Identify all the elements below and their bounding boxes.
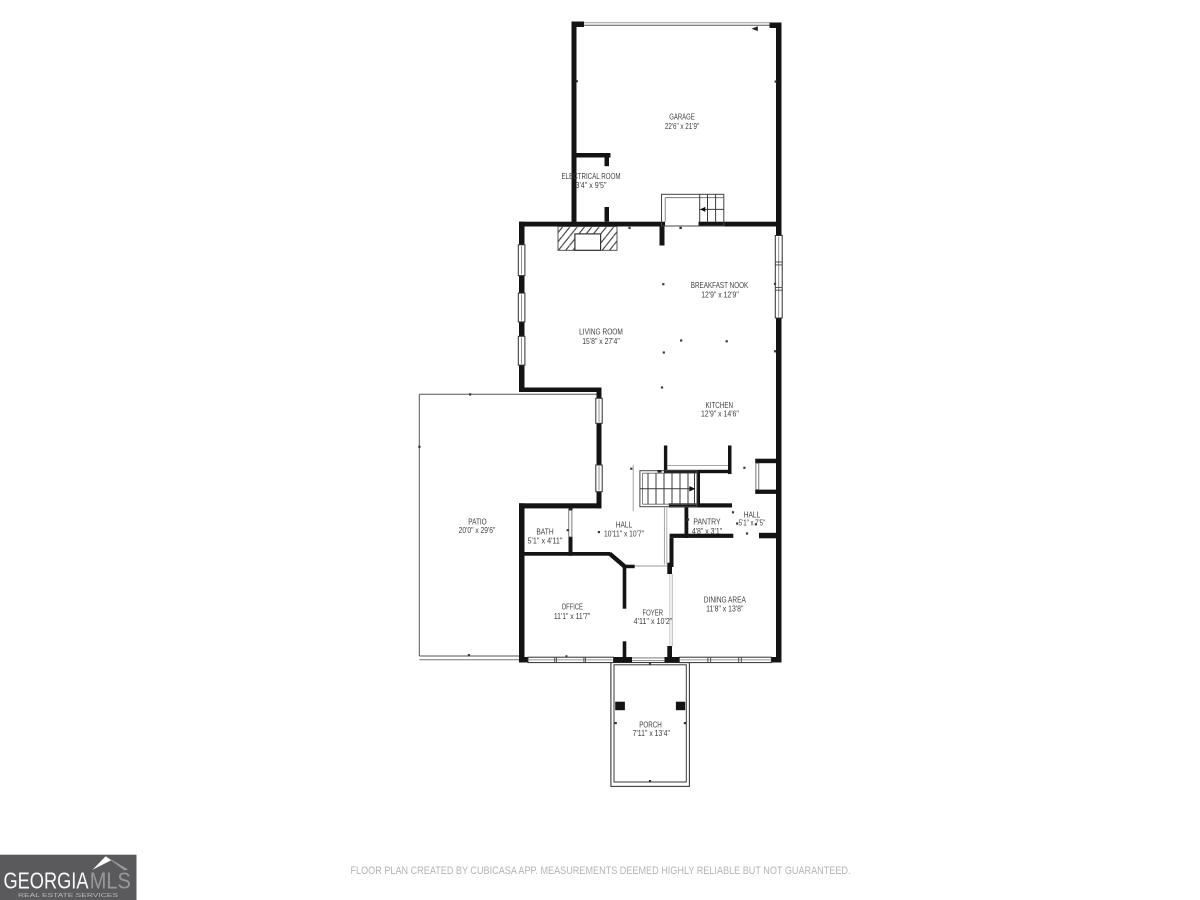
svg-text:FLOOR PLAN CREATED BY CUBICASA: FLOOR PLAN CREATED BY CUBICASA APP. MEAS…	[351, 865, 851, 877]
svg-text:11'8" x 13'8": 11'8" x 13'8"	[706, 605, 743, 614]
svg-text:3'4" x 9'5": 3'4" x 9'5"	[576, 181, 607, 190]
svg-text:20'0" x 29'6": 20'0" x 29'6"	[459, 526, 496, 535]
svg-text:5'1" x 4'11": 5'1" x 4'11"	[528, 537, 563, 546]
svg-text:12'9" x 12'9": 12'9" x 12'9"	[701, 291, 739, 300]
svg-text:LIVING ROOM: LIVING ROOM	[579, 327, 623, 337]
svg-text:HALL: HALL	[616, 520, 633, 530]
svg-text:PANTRY: PANTRY	[693, 517, 721, 527]
svg-text:FOYER: FOYER	[642, 608, 663, 618]
svg-text:REAL ESTATE SERVICES: REAL ESTATE SERVICES	[18, 893, 119, 899]
svg-text:4'11" x 10'2": 4'11" x 10'2"	[634, 617, 673, 626]
svg-text:GEORGIA: GEORGIA	[4, 868, 89, 894]
svg-text:4'8" x 3'1": 4'8" x 3'1"	[692, 527, 722, 536]
svg-text:MLS: MLS	[90, 868, 131, 894]
svg-text:10'11" x 10'7": 10'11" x 10'7"	[604, 530, 644, 539]
svg-text:PORCH: PORCH	[639, 720, 662, 730]
svg-text:12'9" x 14'6": 12'9" x 14'6"	[701, 410, 739, 419]
svg-text:PATIO: PATIO	[468, 517, 487, 527]
svg-text:BREAKFAST NOOK: BREAKFAST NOOK	[691, 280, 749, 290]
svg-text:KITCHEN: KITCHEN	[706, 400, 734, 410]
svg-text:OFFICE: OFFICE	[562, 602, 584, 612]
svg-text:ELECTRICAL ROOM: ELECTRICAL ROOM	[562, 171, 621, 181]
svg-text:5'1" x 7'5": 5'1" x 7'5"	[739, 518, 766, 527]
svg-text:11'1" x 11'7": 11'1" x 11'7"	[554, 612, 590, 621]
svg-text:DINING AREA: DINING AREA	[704, 595, 746, 605]
svg-text:22'6" x 21'9": 22'6" x 21'9"	[665, 122, 699, 131]
svg-text:GARAGE: GARAGE	[669, 112, 695, 122]
svg-text:15'8" x 27'4": 15'8" x 27'4"	[582, 337, 620, 346]
svg-text:BATH: BATH	[536, 527, 553, 537]
svg-text:7'11" x 13'4": 7'11" x 13'4"	[633, 729, 670, 738]
